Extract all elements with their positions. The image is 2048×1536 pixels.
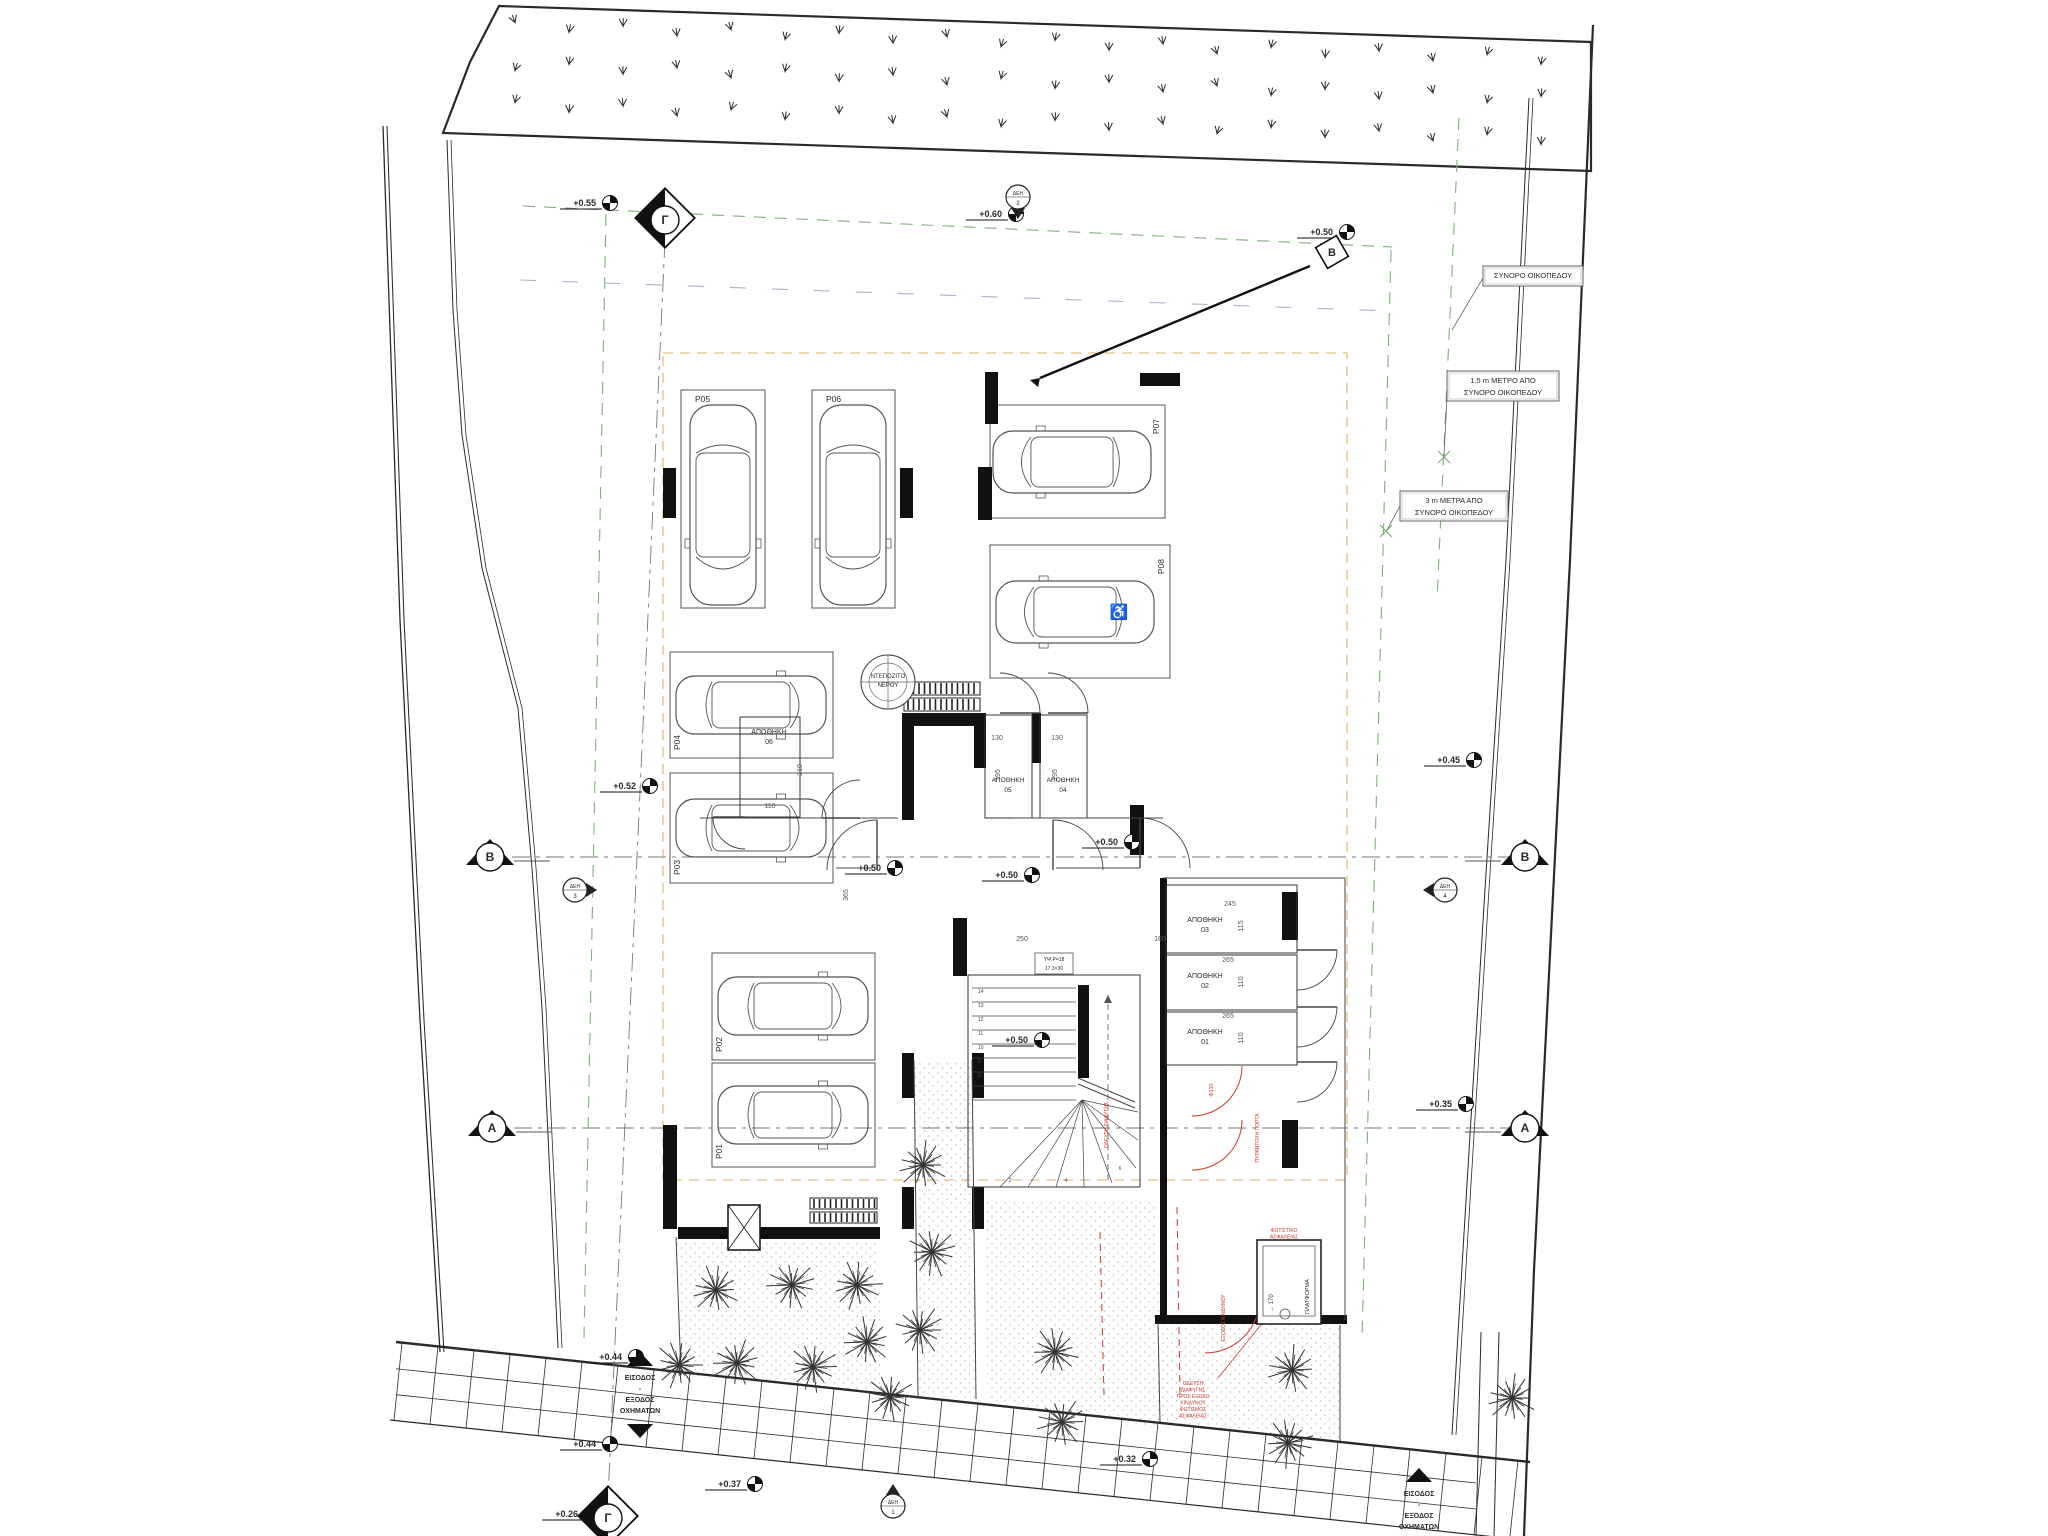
grid-marker: [468, 1110, 552, 1142]
sidewalk-hatch-line: [502, 1354, 510, 1432]
entrance-text: ΟΧΗΜΑΤΩΝ: [1399, 1524, 1439, 1531]
platform-dim: → 170: [1269, 1294, 1275, 1312]
dimension-label: 110: [1238, 1032, 1245, 1043]
car-mirror: [819, 1144, 828, 1149]
entrance-text: ΕΙΣΟΔΟΣ: [1404, 1491, 1435, 1498]
sidewalk-hatch-line: [934, 1400, 942, 1478]
level-value: +0.26: [555, 1509, 578, 1519]
parking-stall: [712, 953, 875, 1060]
sidewalk-hatch-line: [682, 1373, 690, 1451]
dimension-label: 265: [1222, 1013, 1234, 1020]
grid-marker: [466, 839, 550, 871]
grid-letter: Α: [1521, 1121, 1530, 1135]
car-icon: [718, 972, 868, 1040]
sidewalk-hatch-line: [862, 1392, 870, 1470]
planted-area: [914, 1060, 976, 1399]
entrance-text: ΕΞΟΔΟΣ: [1405, 1513, 1434, 1520]
wall-segment: [902, 713, 986, 726]
car-icon: [685, 405, 761, 605]
stair-note-text: 17.3×30: [1045, 966, 1063, 972]
door-arc: [822, 780, 860, 818]
car-body: [718, 1086, 868, 1144]
level-value: +0.50: [1005, 1035, 1028, 1045]
stair-number: 13: [978, 1003, 984, 1009]
wall-segment: [902, 1053, 914, 1098]
car-windshield: [832, 983, 841, 1029]
line: [813, 1366, 837, 1367]
level-value: +0.32: [1113, 1454, 1136, 1464]
red-note-text: ΑΣΦΑΛΕΙΑΣ: [1179, 1414, 1207, 1420]
car-body: [718, 977, 868, 1035]
red-note: ΦΩΤΙΣΤΙΚΟΑΣΦΑΛΕΙΑΣ: [1270, 1228, 1298, 1241]
wall-segment: [978, 467, 992, 520]
sidewalk-hatch-line: [1510, 1461, 1518, 1536]
room-label: ΑΠΟΘΗΚΗ: [1187, 917, 1222, 924]
room-label: 06: [765, 739, 773, 746]
parking-stall-label: P07: [1151, 419, 1161, 434]
car-windshield: [790, 682, 799, 728]
electric-meters: [810, 1212, 877, 1223]
parking-stall-outline: [681, 390, 765, 608]
wall-segment: [974, 713, 986, 768]
parking-stall: [990, 545, 1170, 678]
car-mirror: [777, 857, 786, 862]
room-label: 01: [1201, 1039, 1209, 1046]
red-note-text: ΦΩΤΙΣΤΙΚΟ: [1271, 1228, 1298, 1234]
setback-line-left: [584, 214, 606, 1338]
path: [1150, 1452, 1158, 1460]
wall-segment: [902, 1187, 914, 1229]
level-value: +0.45: [1437, 755, 1460, 765]
sidewalk-hatch-line: [718, 1377, 726, 1455]
building-outline-dashed: [663, 353, 1347, 1180]
red-note: ΟΔΕΥΣΗ ΔΙΑΦΥΓΗΣ: [1104, 1102, 1110, 1148]
tree-icon: [1489, 1373, 1534, 1419]
car-cabin: [754, 1092, 832, 1138]
red-note: ΕΞΟΔΟΣ ΚΙΝΔΥΝΟΥ: [1221, 1294, 1227, 1342]
stair-number: 14: [978, 989, 984, 995]
wall-segment: [985, 372, 998, 424]
red-note-text: ΠΥΡΑΝΤΟΧΗ ΠΟΡΤΑ: [1255, 1113, 1261, 1163]
stair-arrowhead: [1104, 995, 1112, 1003]
axis-line-g: [608, 240, 665, 1498]
sidewalk-hatch-line: [1438, 1453, 1446, 1531]
red-note-text: ΑΣΦΑΛΕΙΑΣ: [1270, 1235, 1298, 1241]
wall-segment: [678, 1227, 880, 1239]
parking-stall-label: P08: [1156, 559, 1166, 574]
dimension-label: 130: [991, 735, 1003, 742]
red-door-arc: [1192, 1120, 1242, 1170]
grid-letter: Γ: [604, 1511, 612, 1525]
upper-floor-projection: [520, 280, 1390, 311]
grid-marker: [1465, 1110, 1549, 1142]
path: [603, 203, 611, 211]
car-mirror: [1039, 643, 1048, 648]
level-value: +0.44: [573, 1439, 596, 1449]
car-body: [996, 581, 1154, 643]
grid-letter: Γ: [661, 213, 669, 227]
red-door-arc: [1192, 1066, 1242, 1116]
planted-area: [984, 1200, 1166, 1430]
plot-boundary-right: [1456, 98, 1533, 1435]
path: [1459, 1104, 1467, 1112]
path: [650, 779, 658, 787]
sidewalk-hatch-line: [1222, 1430, 1230, 1508]
path: [1035, 1040, 1043, 1048]
car-mirror: [1039, 576, 1048, 581]
entrance-text: ΟΧΗΜΑΤΩΝ: [620, 1408, 660, 1415]
sidewalk-hatch-line: [1330, 1442, 1338, 1520]
plot-boundary-left: [451, 140, 562, 1348]
stair-number: 6: [1119, 1166, 1122, 1172]
stair-winder: [1082, 1100, 1084, 1187]
platform-label: ΠΛΑΤΦΟΡΜΑ: [1305, 1279, 1311, 1314]
stair-number: 9: [978, 1059, 981, 1065]
section-letter: Β: [1328, 247, 1336, 259]
vehicle-entrance-arrow: [627, 1352, 653, 1438]
path: [1032, 868, 1040, 876]
red-note: Φ110: [1209, 1083, 1215, 1096]
parking-stall-outline: [812, 390, 895, 608]
door-arc: [1297, 1062, 1337, 1102]
stair-number: 4: [1065, 1178, 1068, 1184]
grass-band: [443, 6, 1591, 171]
car-mirror: [685, 539, 690, 548]
room-label: 03: [1201, 927, 1209, 934]
annotation-leader: [1444, 398, 1447, 456]
red-note-text: ΚΙΝΔΥΝΟΥ: [1180, 1401, 1206, 1407]
path: [1340, 232, 1348, 240]
car-windshield: [1024, 587, 1033, 637]
red-note-text: ΕΞΟΔΟΣ ΚΙΝΔΥΝΟΥ: [1221, 1294, 1227, 1342]
door-arc: [1297, 1007, 1337, 1047]
car-body: [993, 431, 1151, 493]
car-windshield: [832, 1092, 841, 1138]
car-windshield: [696, 557, 750, 569]
utility-label: ΔΕΗ: [570, 884, 581, 890]
utility-label: ΔΕΗ: [888, 1500, 899, 1506]
red-note: ΠΥΡΑΝΤΟΧΗ ΠΟΡΤΑ: [1255, 1113, 1261, 1163]
parking-stall-outline: [712, 953, 875, 1060]
parking-stall-label: P05: [695, 394, 710, 404]
path: [748, 1484, 756, 1492]
car-cabin: [754, 983, 832, 1029]
utility-tail: [1423, 883, 1434, 897]
path: [610, 196, 618, 204]
dimension-label: 130: [1051, 735, 1063, 742]
parking-stall-outline: [712, 1063, 875, 1167]
sidewalk-hatch-line: [970, 1404, 978, 1482]
car-mirror: [777, 671, 786, 676]
door-arc: [1140, 818, 1190, 868]
sidewalk-hatch-line: [466, 1350, 474, 1428]
sidewalk-hatch-line: [898, 1396, 906, 1474]
annotation-text: ΣΥΝΟΡΟ ΟΙΚΟΠΕΔΟΥ: [1464, 388, 1542, 397]
car-icon: [996, 576, 1154, 648]
sidewalk-hatch-line: [1258, 1434, 1266, 1512]
car-icon: [815, 405, 891, 605]
car-mirror: [819, 972, 828, 977]
car-mirror: [819, 1081, 828, 1086]
car-cabin: [826, 453, 880, 557]
grid-letter: Β: [1521, 850, 1530, 864]
wall-segment: [1140, 373, 1180, 386]
car-rear-window: [1113, 437, 1119, 487]
water-tank-label: ΝΤΕΠΟΖΙΤΟ: [871, 674, 906, 680]
room-label: ΑΠΟΘΗΚΗ: [992, 777, 1025, 784]
stair-number: 12: [978, 1017, 984, 1023]
handicap-icon: ♿: [1110, 603, 1129, 621]
red-note: ΟΔΕΥΣΗΔΙΑΦΥΓΗΣΠΡΟΣ ΕΞΟΔΟΚΙΝΔΥΝΟΥΦΩΤΙΣΜΟΣ…: [1177, 1381, 1210, 1420]
path: [755, 1477, 763, 1485]
water-tank-label: ΝΕΡΟΥ: [878, 683, 899, 689]
stair-winder: [1056, 1100, 1082, 1187]
dimension-label: 265: [1222, 957, 1234, 964]
parking-stall-label: P02: [714, 1037, 724, 1052]
arrow-down-icon: [627, 1424, 653, 1438]
setback-line-right-3m: [1362, 250, 1391, 1338]
grid-letter: Β: [486, 850, 495, 864]
room-label: ΑΠΟΘΗΚΗ: [1187, 973, 1222, 980]
car-body: [820, 405, 886, 605]
utility-marker: [1423, 878, 1457, 902]
room-label: ΑΠΟΘΗΚΗ: [751, 729, 786, 736]
wall-segment: [902, 713, 914, 820]
path: [888, 868, 896, 876]
red-note-text: ΔΙΑΦΥΓΗΣ: [1181, 1388, 1206, 1394]
level-value: +0.60: [979, 209, 1002, 219]
wall-segment: [663, 468, 676, 518]
path: [603, 1444, 611, 1452]
door-arc: [713, 817, 745, 849]
stair-rail: [1078, 1078, 1135, 1102]
grid-marker: [1465, 839, 1549, 871]
stair-number: 11: [978, 1031, 983, 1037]
sidewalk-hatch-line: [1366, 1445, 1374, 1523]
utility-marker: [563, 878, 597, 902]
level-value: +0.50: [1095, 837, 1118, 847]
car-mirror: [819, 1035, 828, 1040]
path: [1025, 875, 1033, 883]
red-note-text: ΠΡΟΣ ΕΞΟΔΟ: [1177, 1394, 1210, 1400]
car-body: [690, 405, 756, 605]
annotation-text: 3 m ΜΕΤΡΑ ΑΠΟ: [1425, 496, 1483, 505]
sidewalk-hatch-line: [1078, 1415, 1086, 1493]
parking-stall-label: P01: [714, 1144, 724, 1159]
stair-number: 10: [978, 1045, 984, 1051]
plot-line-br-1: [1476, 1332, 1481, 1536]
wall-segment: [900, 468, 913, 518]
car-icon: [993, 426, 1151, 498]
path: [610, 1437, 618, 1445]
sheet-border-left: [387, 126, 444, 1352]
car-windshield: [1021, 437, 1030, 487]
annotation-leader: [1452, 278, 1483, 330]
sidewalk-hatch-line: [1042, 1411, 1050, 1489]
door-arc: [1048, 673, 1088, 713]
sheet-border-left: [383, 126, 440, 1352]
sidewalk-hatch-line: [394, 1343, 402, 1421]
site-plan-svg: P05P06P07♿P08P04P03P02P01141312111098246…: [0, 0, 2048, 1536]
stair-note-text: ΥΨ.Ρ=18: [1044, 957, 1065, 963]
stair-well: [968, 975, 1140, 1187]
red-note-text: ΦΩΤΙΣΜΟΣ: [1180, 1407, 1206, 1413]
car-mirror: [1036, 493, 1045, 498]
section-arrowhead: [1030, 378, 1040, 387]
storage-05-room: [985, 715, 1032, 818]
car-cabin: [696, 453, 750, 557]
stair-number: 8: [978, 1073, 981, 1079]
level-value: +0.44: [599, 1352, 622, 1362]
sidewalk-hatch-line: [430, 1346, 438, 1424]
entrance-text: ΕΞΟΔΟΣ: [626, 1397, 655, 1404]
annotation-text: ΣΥΝΟΡΟ ΟΙΚΟΠΕΔΟΥ: [1494, 271, 1572, 280]
car-body: [676, 676, 826, 734]
stair-winder: [1028, 1100, 1082, 1187]
car-cabin: [712, 805, 790, 851]
electric-meters: [810, 1198, 877, 1209]
dimension-label: 365: [843, 889, 850, 901]
car-rear-window: [706, 682, 712, 728]
parking-stall: [670, 652, 833, 758]
car-rear-window: [826, 445, 880, 453]
room-label: 04: [1059, 787, 1067, 794]
car-mirror: [1036, 426, 1045, 431]
stair-winder: [1000, 1100, 1082, 1187]
car-mirror: [756, 539, 761, 548]
annotation-leader: [1387, 506, 1400, 530]
red-note-text: ΟΔΕΥΣΗ ΔΙΑΦΥΓΗΣ: [1104, 1102, 1110, 1148]
parking-stall: [812, 390, 895, 608]
room-label: ΑΠΟΘΗΚΗ: [1047, 777, 1080, 784]
car-windshield: [826, 557, 880, 569]
dimension-label: 210: [797, 764, 804, 776]
planted-area: [676, 1240, 884, 1395]
level-value: +0.50: [858, 863, 881, 873]
entrance-text: ΕΙΣΟΔΟΣ: [625, 1375, 656, 1382]
path: [1042, 1033, 1050, 1041]
section-cut-line: [1040, 266, 1310, 378]
car-icon: [718, 1081, 868, 1149]
door-arc: [1000, 673, 1040, 713]
parking-stall-outline: [670, 652, 833, 758]
path: [1474, 753, 1482, 761]
car-mirror: [815, 539, 820, 548]
arrow-up-icon: [1406, 1468, 1432, 1482]
wall-segment: [1078, 985, 1089, 1078]
parking-stall-outline: [990, 405, 1165, 518]
car-cabin: [712, 682, 790, 728]
wall-segment: [1282, 892, 1298, 940]
car-rear-window: [696, 445, 750, 453]
parking-stall-outline: [990, 545, 1170, 678]
room-label: ΑΠΟΘΗΚΗ: [1187, 1029, 1222, 1036]
car-cabin: [1034, 587, 1116, 637]
setback-line-right-1-5m: [1437, 118, 1459, 600]
annotation-text: ΣΥΝΟΡΟ ΟΙΚΟΠΕΔΟΥ: [1415, 508, 1493, 517]
sidewalk-hatch-line: [790, 1385, 798, 1463]
dimension-label: 250: [1016, 936, 1028, 943]
dimension-label: 110: [764, 803, 775, 810]
stair-number: 2: [1009, 1178, 1012, 1184]
red-note-text: ΟΔΕΥΣΗ: [1183, 1381, 1204, 1387]
parking-stall: [681, 390, 765, 608]
entrance-text: -: [639, 1386, 642, 1393]
dimension-label: 160: [1154, 936, 1166, 943]
car-body: [676, 799, 826, 857]
path: [895, 861, 903, 869]
plot-line-br-2: [1494, 1332, 1499, 1536]
utility-tail: [586, 883, 597, 897]
road-edge-right: [1524, 25, 1593, 1536]
path: [643, 786, 651, 794]
car-rear-window: [748, 983, 754, 1029]
parking-stall-outline: [670, 773, 833, 883]
car-mirror: [886, 539, 891, 548]
grid-letter: Α: [488, 1121, 497, 1135]
car-mirror: [777, 794, 786, 799]
sidewalk-hatch-line: [538, 1358, 546, 1436]
car-rear-window: [748, 1092, 754, 1138]
plot-boundary-left: [447, 140, 558, 1348]
site-plan-sheet: P05P06P07♿P08P04P03P02P01141312111098246…: [0, 0, 2048, 1536]
parking-stall-label: P03: [672, 860, 682, 875]
dimension-label: 110: [1238, 976, 1245, 987]
path: [1125, 842, 1133, 850]
car-icon: [676, 794, 826, 862]
sidewalk-hatch-line: [574, 1362, 582, 1440]
parking-stall: [670, 773, 833, 883]
annotation-text: 1.5 m ΜΕΤΡΟ ΑΠΟ: [1470, 376, 1536, 385]
level-value: +0.35: [1429, 1099, 1452, 1109]
level-value: +0.37: [718, 1479, 741, 1489]
path: [1467, 760, 1475, 768]
sidewalk-hatch-line: [1006, 1407, 1014, 1485]
line: [857, 1285, 858, 1296]
path: [1009, 214, 1017, 222]
line: [866, 1326, 867, 1342]
sidewalk-hatch-line: [754, 1381, 762, 1459]
red-note-text: Φ110: [1209, 1083, 1215, 1096]
room-label: 02: [1201, 983, 1209, 990]
utility-label: ΔΕΗ: [1013, 191, 1024, 197]
level-value: +0.50: [995, 870, 1018, 880]
level-value: +0.52: [613, 781, 636, 791]
level-value: +0.55: [573, 198, 596, 208]
parking-stall: [712, 1063, 875, 1167]
wall-segment: [953, 918, 967, 976]
car-rear-window: [706, 805, 712, 851]
parking-stall-label: P06: [826, 394, 841, 404]
sidewalk-hatch-line: [826, 1388, 834, 1466]
door-arc: [1297, 950, 1337, 990]
car-cabin: [1031, 437, 1113, 487]
sidewalk-hatch-line: [1186, 1426, 1194, 1504]
parking-stall: [990, 405, 1165, 518]
path: [1143, 1459, 1151, 1467]
parking-stall-label: P04: [672, 735, 682, 750]
dimension-label: 115: [1238, 920, 1245, 931]
car-windshield: [790, 805, 799, 851]
dimension-label: 245: [1224, 901, 1236, 908]
level-value: +0.50: [1310, 227, 1333, 237]
wall-segment: [1282, 1120, 1298, 1168]
electric-meters: [904, 698, 980, 711]
wall-segment: [663, 1125, 677, 1229]
utility-label: ΔΕΗ: [1440, 884, 1451, 890]
storage-04-room: [1040, 715, 1087, 818]
utility-tail: [886, 1484, 900, 1495]
